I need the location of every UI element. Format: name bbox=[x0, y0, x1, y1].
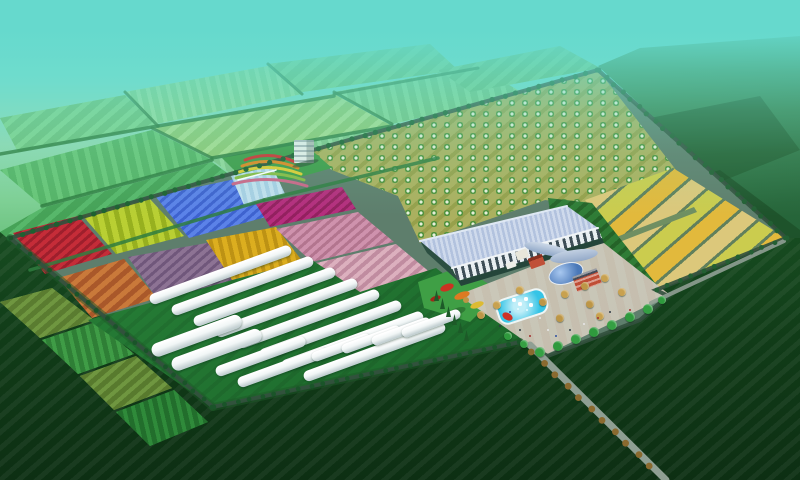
wall-trees-south-tree-icon bbox=[408, 363, 413, 368]
wall-trees-ne-tree-icon bbox=[742, 199, 747, 204]
wall-trees-ne-tree-icon bbox=[768, 221, 773, 226]
wall-trees-nw-1-tree-icon bbox=[101, 208, 106, 213]
wall-trees-nw-2-tree-icon bbox=[489, 97, 494, 102]
autumn-tree-icon bbox=[601, 274, 609, 282]
wall-trees-west-tree-icon bbox=[36, 260, 41, 265]
wall-trees-west-tree-icon bbox=[152, 356, 157, 361]
autumn-tree-icon bbox=[556, 314, 564, 322]
wall-trees-nw-2-tree-icon bbox=[339, 140, 344, 145]
wall-trees-nw-1-tree-icon bbox=[281, 156, 286, 161]
wall-trees-nw-1-tree-icon bbox=[125, 201, 130, 206]
wall-trees-nw-1-tree-icon bbox=[209, 177, 214, 182]
road-autumn-trees-tree-icon bbox=[551, 371, 558, 378]
road-autumn-trees-tree-icon bbox=[588, 406, 595, 413]
wall-trees-nw-2-tree-icon bbox=[536, 84, 541, 89]
wall-trees-nw-2-tree-icon bbox=[456, 107, 461, 112]
aerial-farm-scene bbox=[0, 0, 800, 480]
wall-trees-ne-tree-icon bbox=[676, 140, 681, 145]
wall-trees-west-tree-icon bbox=[8, 236, 13, 241]
wall-trees-nw-2-tree-icon bbox=[560, 77, 565, 82]
autumn-tree-icon bbox=[618, 288, 626, 296]
wall-trees-south-tree-icon bbox=[222, 402, 227, 407]
treeline-9 bbox=[268, 64, 302, 94]
wall-trees-se-tree-icon bbox=[783, 236, 788, 241]
wall-trees-nw-2-tree-icon bbox=[549, 81, 554, 86]
wall-trees-nw-1-tree-icon bbox=[149, 194, 154, 199]
wall-trees-nw-2-tree-icon bbox=[373, 130, 378, 135]
wall-trees-south-tree-icon bbox=[285, 389, 290, 394]
wall-trees-nw-1-tree-icon bbox=[243, 167, 248, 172]
road-autumn-trees-tree-icon bbox=[636, 451, 643, 458]
wall-trees-west-tree-icon bbox=[210, 405, 215, 410]
wall-trees-south-tree-icon bbox=[310, 384, 315, 389]
wall-trees-ne-tree-icon bbox=[595, 67, 600, 72]
wall-trees-nw-2-tree-icon bbox=[326, 143, 331, 148]
wall-trees-nw-1-tree-icon bbox=[233, 170, 238, 175]
wall-trees-nw-2-tree-icon bbox=[466, 103, 471, 108]
wall-trees-ne-tree-icon bbox=[653, 119, 658, 124]
wall-trees-nw-2-tree-icon bbox=[573, 74, 578, 79]
wall-trees-west-tree-icon bbox=[28, 252, 33, 257]
overlay-lines bbox=[0, 0, 800, 480]
plaza-tree-icon bbox=[643, 304, 653, 314]
wall-trees-south-tree-icon bbox=[482, 347, 487, 352]
wall-trees-nw-2-tree-icon bbox=[503, 94, 508, 99]
wall-trees-west-tree-icon bbox=[105, 316, 110, 321]
wall-trees-se-tree-icon bbox=[665, 283, 670, 288]
wall-trees-nw-2-tree-icon bbox=[316, 146, 321, 151]
plaza-tree-icon bbox=[553, 341, 563, 351]
wall-trees-ne-tree-icon bbox=[670, 133, 675, 138]
wall-trees-se-tree-icon bbox=[654, 288, 659, 293]
wall-trees-nw-2-tree-icon bbox=[349, 136, 354, 141]
treeline-10 bbox=[152, 128, 212, 158]
wall-trees-ne-tree-icon bbox=[604, 75, 609, 80]
wall-trees-se-tree-icon bbox=[678, 278, 683, 283]
wall-trees-west-tree-icon bbox=[202, 397, 207, 402]
wall-trees-west-tree-icon bbox=[47, 268, 52, 273]
wall-trees-west-tree-icon bbox=[182, 380, 187, 385]
wall-trees-south-tree-icon bbox=[443, 355, 448, 360]
wall-trees-south-tree-icon bbox=[261, 394, 266, 399]
autumn-tree-icon bbox=[477, 311, 485, 319]
treeline-11 bbox=[334, 92, 392, 124]
wall-trees-nw-1-tree-icon bbox=[67, 218, 72, 223]
autumn-tree-icon bbox=[516, 286, 524, 294]
wall-trees-ne-tree-icon bbox=[621, 89, 626, 94]
wall-trees-south-tree-icon bbox=[492, 345, 497, 350]
road-autumn-trees-tree-icon bbox=[575, 394, 582, 401]
wall-trees-nw-1-tree-icon bbox=[138, 198, 143, 203]
wall-trees-nw-1-tree-icon bbox=[78, 215, 83, 220]
wall-trees-west-tree-icon bbox=[144, 348, 149, 353]
wall-trees-south-tree-icon bbox=[247, 397, 252, 402]
wall-trees-nw-1-tree-icon bbox=[172, 187, 177, 192]
wall-trees-ne-tree-icon bbox=[686, 148, 691, 153]
wall-trees-west-tree-icon bbox=[190, 389, 195, 394]
wall-trees-west-tree-icon bbox=[74, 292, 79, 297]
wall-trees-ne-tree-icon bbox=[693, 155, 698, 160]
wall-trees-south-tree-icon bbox=[506, 342, 511, 347]
wall-trees-south-tree-icon bbox=[236, 399, 241, 404]
treeline-6 bbox=[30, 200, 264, 270]
road-autumn-trees-tree-icon bbox=[599, 417, 606, 424]
wall-trees-se-tree-icon bbox=[702, 269, 707, 274]
rainbow-arc-pink bbox=[233, 179, 307, 186]
wall-trees-west-tree-icon bbox=[86, 300, 91, 305]
wall-trees-ne-tree-icon bbox=[660, 126, 665, 131]
autumn-tree-icon bbox=[493, 301, 501, 309]
wall-trees-nw-1-tree-icon bbox=[30, 229, 35, 234]
wall-trees-south-tree-icon bbox=[432, 358, 437, 363]
wall-trees-south-tree-icon bbox=[320, 381, 325, 386]
wall-trees-nw-2-tree-icon bbox=[363, 133, 368, 138]
wall-trees-west-tree-icon bbox=[94, 308, 99, 313]
wall-trees-nw-2-tree-icon bbox=[583, 71, 588, 76]
road-autumn-trees-tree-icon bbox=[565, 383, 572, 390]
wall-trees-nw-2-tree-icon bbox=[443, 110, 448, 115]
wall-trees-south-tree-icon bbox=[334, 379, 339, 384]
road-autumn-trees-tree-icon bbox=[541, 360, 548, 367]
wall-trees-west-tree-icon bbox=[132, 340, 137, 345]
wall-trees-se-tree-icon bbox=[736, 255, 741, 260]
wall-trees-nw-2-tree-icon bbox=[396, 123, 401, 128]
wall-trees-south-tree-icon bbox=[468, 350, 473, 355]
wall-trees-south-tree-icon bbox=[345, 376, 350, 381]
wall-trees-ne-tree-icon bbox=[709, 170, 714, 175]
wall-trees-nw-1-tree-icon bbox=[257, 163, 262, 168]
east-road bbox=[651, 241, 784, 303]
wall-trees-nw-1-tree-icon bbox=[54, 222, 59, 227]
wall-trees-nw-2-tree-icon bbox=[419, 117, 424, 122]
treeline-8 bbox=[125, 92, 158, 126]
treeline-2 bbox=[158, 96, 334, 126]
wall-trees-south-tree-icon bbox=[369, 371, 374, 376]
plaza-tree-icon bbox=[658, 296, 666, 304]
wall-trees-se-tree-icon bbox=[712, 264, 717, 269]
wall-trees-nw-1-tree-icon bbox=[115, 204, 120, 209]
autumn-tree-icon bbox=[463, 297, 469, 303]
wall-trees-south-tree-icon bbox=[419, 360, 424, 365]
wall-trees-nw-1-tree-icon bbox=[186, 184, 191, 189]
plaza-tree-icon bbox=[625, 312, 635, 322]
wall-trees-south-tree-icon bbox=[383, 368, 388, 373]
wall-trees-south-tree-icon bbox=[271, 392, 276, 397]
treeline-7 bbox=[334, 68, 478, 94]
wall-trees-ne-tree-icon bbox=[735, 192, 740, 197]
road-autumn-trees-tree-icon bbox=[528, 349, 535, 356]
fountain-spray bbox=[518, 302, 521, 305]
plaza-tree-icon bbox=[504, 332, 512, 340]
wall-trees-nw-2-tree-icon bbox=[513, 90, 518, 95]
treeline-3 bbox=[42, 160, 212, 206]
plaza-tree-icon bbox=[535, 347, 545, 357]
wall-trees-ne-tree-icon bbox=[627, 97, 632, 102]
wall-trees-west-tree-icon bbox=[124, 332, 129, 337]
wall-trees-west-tree-icon bbox=[66, 284, 71, 289]
wall-trees-nw-2-tree-icon bbox=[433, 113, 438, 118]
wall-trees-se-tree-icon bbox=[759, 245, 764, 250]
wall-trees-nw-1-tree-icon bbox=[162, 191, 167, 196]
greenhouse-ridge bbox=[420, 206, 567, 241]
wall-trees-south-tree-icon bbox=[359, 373, 364, 378]
wall-trees-nw-1-tree-icon bbox=[196, 180, 201, 185]
wall-trees-nw-1-tree-icon bbox=[220, 173, 225, 178]
plaza-tree-icon bbox=[520, 340, 528, 348]
wall-trees-ne-tree-icon bbox=[752, 206, 757, 211]
wall-trees-ne-tree-icon bbox=[637, 104, 642, 109]
wall-trees-ne-tree-icon bbox=[702, 162, 707, 167]
road-autumn-trees-tree-icon bbox=[646, 463, 653, 470]
autumn-tree-icon bbox=[539, 298, 547, 306]
plaza-tree-icon bbox=[589, 327, 599, 337]
wall-trees-ne-tree-icon bbox=[611, 82, 616, 87]
wall-trees-south-tree-icon bbox=[394, 366, 399, 371]
wall-trees-ne-tree-icon bbox=[774, 228, 779, 233]
wall-trees-se-tree-icon bbox=[725, 259, 730, 264]
wall-trees-west-tree-icon bbox=[171, 372, 176, 377]
wall-trees-ne-tree-icon bbox=[644, 111, 649, 116]
wall-trees-west-tree-icon bbox=[16, 244, 21, 249]
autumn-tree-icon bbox=[561, 290, 569, 298]
wall-trees-south-tree-icon bbox=[457, 353, 462, 358]
wall-trees-nw-2-tree-icon bbox=[526, 87, 531, 92]
wall-trees-west-tree-icon bbox=[163, 364, 168, 369]
wall-trees-nw-1-tree-icon bbox=[91, 211, 96, 216]
wall-trees-nw-1-tree-icon bbox=[44, 225, 49, 230]
wall-trees-ne-tree-icon bbox=[725, 184, 730, 189]
wall-trees-south-tree-icon bbox=[296, 386, 301, 391]
plaza-tree-icon bbox=[571, 334, 581, 344]
wall-trees-nw-2-tree-icon bbox=[386, 126, 391, 131]
wall-trees-nw-2-tree-icon bbox=[479, 100, 484, 105]
perimeter-wall bbox=[10, 70, 786, 407]
wall-trees-nw-1-tree-icon bbox=[20, 232, 25, 237]
wall-trees-se-tree-icon bbox=[688, 273, 693, 278]
wall-trees-nw-1-tree-icon bbox=[267, 160, 272, 165]
fountain-spray bbox=[512, 298, 515, 301]
wall-trees-ne-tree-icon bbox=[719, 177, 724, 182]
autumn-tree-icon bbox=[581, 282, 589, 290]
access-road bbox=[530, 345, 666, 480]
autumn-tree-icon bbox=[586, 300, 594, 308]
wall-trees-ne-tree-icon bbox=[758, 213, 763, 218]
wall-trees-se-tree-icon bbox=[749, 250, 754, 255]
wall-trees-nw-2-tree-icon bbox=[409, 120, 414, 125]
wall-trees-west-tree-icon bbox=[113, 324, 118, 329]
plaza-tree-icon bbox=[607, 320, 617, 330]
fountain-spray bbox=[524, 297, 527, 300]
wall-trees-west-tree-icon bbox=[55, 276, 60, 281]
fountain-spray bbox=[529, 303, 532, 306]
wall-trees-se-tree-icon bbox=[773, 240, 778, 245]
treeline-1 bbox=[0, 126, 158, 154]
road-autumn-trees-tree-icon bbox=[622, 440, 629, 447]
road-autumn-trees-tree-icon bbox=[612, 428, 619, 435]
